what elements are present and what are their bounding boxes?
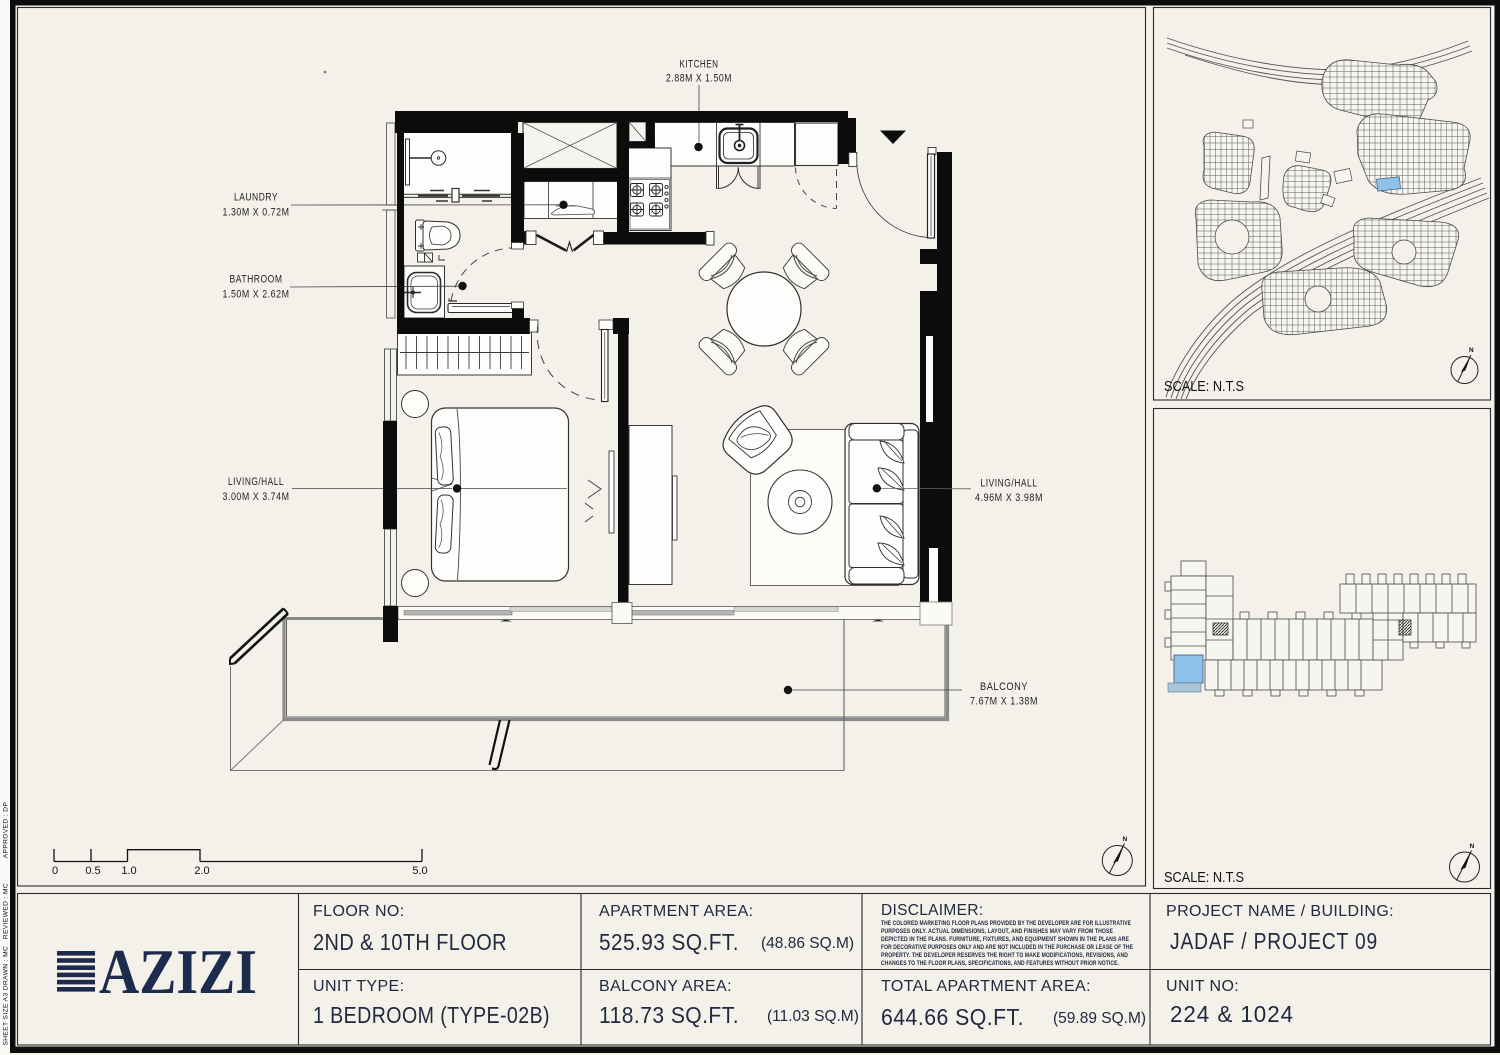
svg-text:LIVING/HALL: LIVING/HALL xyxy=(228,476,284,488)
svg-text:7.67M X 1.38M: 7.67M X 1.38M xyxy=(970,696,1038,708)
svg-text:DEPICTED IN THE PLANS. FURNITU: DEPICTED IN THE PLANS. FURNITURE, FIXTUR… xyxy=(881,936,1129,943)
svg-text:PROPERTY. THE DEVELOPER RESERV: PROPERTY. THE DEVELOPER RESERVES THE RIG… xyxy=(881,952,1128,959)
svg-text:LIVING/HALL: LIVING/HALL xyxy=(981,478,1038,490)
svg-text:BATHROOM: BATHROOM xyxy=(230,274,283,286)
svg-text:FLOOR NO:: FLOOR NO: xyxy=(313,903,405,920)
svg-text:0: 0 xyxy=(52,865,58,877)
svg-text:4.96M X 3.98M: 4.96M X 3.98M xyxy=(975,492,1043,504)
svg-text:BALCONY AREA:: BALCONY AREA: xyxy=(599,978,732,995)
svg-text:PURPOSES ONLY. ACTUAL DIMENSIO: PURPOSES ONLY. ACTUAL DIMENSIONS, LAYOUT… xyxy=(881,928,1113,935)
svg-text:UNIT TYPE:: UNIT TYPE: xyxy=(313,978,404,995)
svg-text:224 & 1024: 224 & 1024 xyxy=(1170,1001,1294,1027)
svg-text:(59.89 SQ.M): (59.89 SQ.M) xyxy=(1053,1010,1146,1027)
svg-text:1 BEDROOM (TYPE-02B): 1 BEDROOM (TYPE-02B) xyxy=(313,1002,550,1028)
svg-text:(11.03 SQ.M): (11.03 SQ.M) xyxy=(767,1008,859,1025)
svg-text:N: N xyxy=(1123,836,1128,843)
svg-text:3.00M X 3.74M: 3.00M X 3.74M xyxy=(223,491,290,503)
svg-text:5.0: 5.0 xyxy=(412,865,427,877)
svg-text:SCALE: N.T.S: SCALE: N.T.S xyxy=(1164,379,1244,395)
svg-text:118.73 SQ.FT.: 118.73 SQ.FT. xyxy=(599,1002,739,1028)
svg-text:525.93 SQ.FT.: 525.93 SQ.FT. xyxy=(599,929,739,955)
svg-text:1.50M X 2.62M: 1.50M X 2.62M xyxy=(223,289,290,301)
svg-text:2ND & 10TH FLOOR: 2ND & 10TH FLOOR xyxy=(313,929,507,955)
svg-text:644.66 SQ.FT.: 644.66 SQ.FT. xyxy=(881,1004,1024,1030)
svg-text:2.88M X 1.50M: 2.88M X 1.50M xyxy=(666,73,732,85)
svg-text:JADAF / PROJECT 09: JADAF / PROJECT 09 xyxy=(1170,928,1378,954)
svg-text:SHEET SIZE A3: SHEET SIZE A3 xyxy=(3,992,10,1045)
svg-text:AZIZI: AZIZI xyxy=(99,936,257,1007)
svg-text:LAUNDRY: LAUNDRY xyxy=(234,192,278,204)
svg-text:DISCLAIMER:: DISCLAIMER: xyxy=(881,902,983,919)
svg-text:N: N xyxy=(1469,347,1474,354)
svg-text:PROJECT NAME / BUILDING:: PROJECT NAME / BUILDING: xyxy=(1166,903,1394,920)
svg-text:TOTAL APARTMENT AREA:: TOTAL APARTMENT AREA: xyxy=(881,978,1091,995)
svg-text:SCALE: N.T.S: SCALE: N.T.S xyxy=(1164,870,1244,886)
svg-text:CHANGES TO THE FLOOR PLANS, SP: CHANGES TO THE FLOOR PLANS, SPECIFICATIO… xyxy=(881,960,1119,967)
svg-text:2.0: 2.0 xyxy=(194,865,209,877)
svg-text:0.5: 0.5 xyxy=(85,865,100,877)
svg-text:APPROVED : DP: APPROVED : DP xyxy=(3,802,10,859)
svg-text:THE COLORED MARKETING FLOOR PL: THE COLORED MARKETING FLOOR PLANS PROVID… xyxy=(881,920,1131,927)
svg-text:1.30M X 0.72M: 1.30M X 0.72M xyxy=(223,207,290,219)
svg-text:N: N xyxy=(1470,843,1475,850)
svg-text:REVIEWED : MC: REVIEWED : MC xyxy=(3,883,10,939)
svg-text:APARTMENT AREA:: APARTMENT AREA: xyxy=(599,903,753,920)
svg-text:UNIT NO:: UNIT NO: xyxy=(1166,978,1239,995)
svg-text:DRAWN : MC: DRAWN : MC xyxy=(3,946,10,990)
svg-text:(48.86 SQ.M): (48.86 SQ.M) xyxy=(761,935,854,952)
svg-text:KITCHEN: KITCHEN xyxy=(680,59,719,71)
svg-text:BALCONY: BALCONY xyxy=(980,681,1028,693)
svg-text:1.0: 1.0 xyxy=(121,865,136,877)
svg-text:FOR DECORATIVE PURPOSES ONLY A: FOR DECORATIVE PURPOSES ONLY AND ARE NOT… xyxy=(881,944,1133,951)
